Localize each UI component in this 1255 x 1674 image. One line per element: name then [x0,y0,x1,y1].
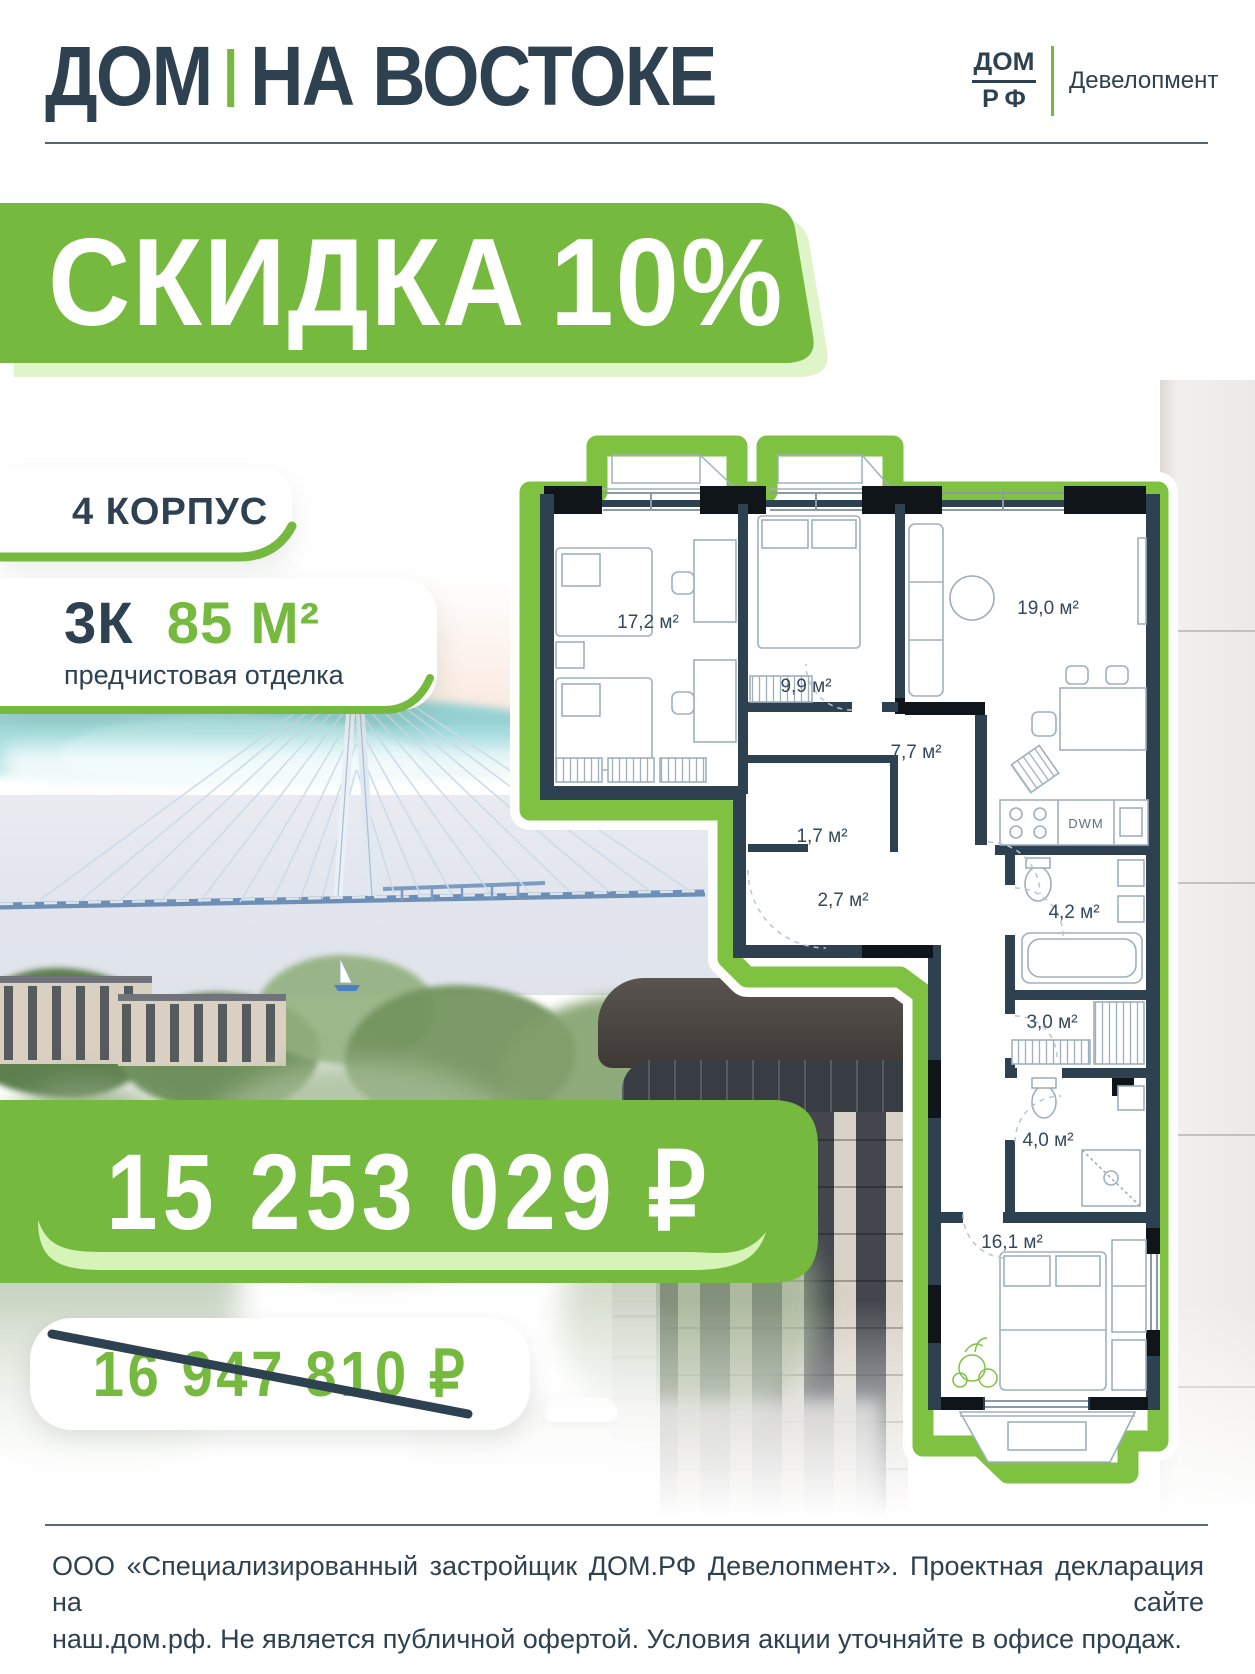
discount-value: 10% [550,212,784,354]
apartment-area: 85 М² [167,591,320,656]
price-current-value: 15 253 029 ₽ [107,1129,712,1255]
room-area-label: 1,7 м² [796,826,847,847]
dishwasher-label: DWM [1068,816,1104,831]
logo-word-dom: ДОМ [970,48,1037,77]
room-area-label: 9,9 м² [780,676,831,697]
floor-plan: 17,2 м² 9,9 м² 19,0 м² 7,7 м² 1,7 м² 2,7… [530,446,1160,1473]
footer-legal: ООО «Специализированный застройщик ДОМ.Р… [52,1548,1204,1657]
room-area-label: 19,0 м² [1017,598,1079,619]
room-area-label: 4,0 м² [1022,1130,1073,1151]
apartment-rooms: 3К [64,591,134,656]
project-title: ДОМНА ВОСТОКЕ [45,28,716,125]
apartment-card-underline [0,664,448,722]
logo-word-rf: РФ [972,85,1036,114]
developer-logo: ДОМ РФ Девелопмент [972,42,1218,120]
header-divider [45,142,1208,144]
room-area-label: 7,7 м² [890,742,941,763]
discount-word: СКИДКА [48,212,526,354]
title-separator-bar [227,49,234,107]
room-area-label: 4,2 м² [1048,902,1099,923]
footer-legal-line1: ООО «Специализированный застройщик ДОМ.Р… [52,1548,1204,1621]
logo-label: Девелопмент [1069,67,1218,95]
room-area-label: 16,1 м² [981,1232,1043,1253]
room-area-label: 3,0 м² [1026,1012,1077,1033]
apartment-summary: 3К 85 М² [64,590,320,657]
project-title-main: ДОМ [45,29,211,123]
dom-rf-logo-mark: ДОМ РФ [972,48,1036,114]
logo-divider-bar [1051,46,1054,116]
room-area-label: 17,2 м² [617,612,679,633]
discount-text: СКИДКА 10% [48,203,784,363]
room-area-label: 2,7 м² [817,890,868,911]
logo-rule [972,80,1036,83]
footer-legal-line2: наш.дом.рф. Не является публичной оферто… [52,1621,1204,1657]
price-current: 15 253 029 ₽ [0,1100,818,1283]
project-title-rest: НА ВОСТОКЕ [250,29,716,123]
old-price-strikethrough [30,1318,530,1430]
promo-poster: 17,2 м² 9,9 м² 19,0 м² 7,7 м² 1,7 м² 2,7… [0,0,1255,1674]
building-badge-underline [0,510,310,570]
footer-divider [45,1524,1208,1526]
